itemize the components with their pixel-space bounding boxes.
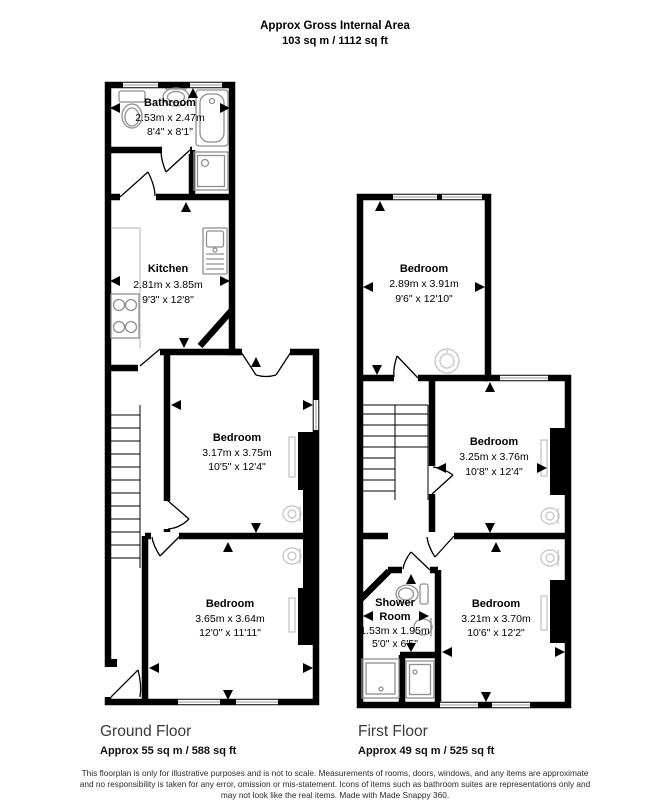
room-dims-imperial: 9'3" x 12'8" (142, 294, 194, 306)
room-name: Bathroom (144, 97, 196, 109)
measurement-arrow (375, 201, 385, 211)
room-dims-imperial: 10'5" x 12'4" (208, 461, 266, 473)
room-dims-imperial: 8'4" x 8'1" (147, 126, 193, 138)
window (500, 375, 548, 382)
floor-captions: Ground Floor Approx 55 sq m / 588 sq ft … (100, 723, 495, 757)
room-dims-imperial: 5'0" x 6'5" (372, 638, 418, 650)
first-floor-door-openings (388, 378, 454, 570)
measurement-arrow (555, 647, 565, 657)
window (178, 699, 220, 706)
room-dims-imperial: 12'0" x 11'11" (199, 627, 261, 639)
measurement-arrow (171, 400, 181, 410)
window (440, 702, 478, 709)
room-label-shower-room: Shower Room 1.53m x 1.95m 5'0" x 6'5" (360, 597, 430, 650)
first-floor-caption: First Floor (358, 723, 428, 740)
shower-tray-icon (406, 661, 434, 698)
room-dims-metric: 2.89m x 3.91m (389, 278, 459, 290)
measurement-arrow (406, 574, 416, 584)
window (313, 400, 320, 430)
ground-floor-area: Approx 55 sq m / 588 sq ft (100, 745, 237, 757)
room-label-bedroom-middle: Bedroom 3.17m x 3.75m 10'5" x 12'4" (202, 432, 272, 473)
window (393, 194, 437, 201)
room-label-bedroom-front: Bedroom 3.21m x 3.70m 10'6" x 12'2" (461, 598, 531, 639)
room-dims-imperial: 10'8" x 12'4" (465, 466, 523, 478)
radiator (289, 598, 295, 632)
ground-floor-windows (123, 82, 320, 706)
disclaimer-line-3: may not look like the real items. Made w… (221, 790, 449, 800)
window (492, 702, 530, 709)
measurement-arrow (220, 276, 230, 286)
measurement-arrow (149, 663, 159, 673)
measurement-arrow (303, 663, 313, 673)
window (123, 82, 158, 89)
measurement-arrow (223, 542, 233, 552)
wall-basin-icon (541, 550, 559, 566)
disclaimer: This floorplan is only for illustrative … (80, 768, 591, 800)
wall-basin-icon (541, 508, 559, 524)
room-label-kitchen: Kitchen 2.81m x 3.85m 9'3" x 12'8" (133, 263, 203, 306)
room-name-line1: Shower (375, 597, 415, 609)
room-label-bedroom-top: Bedroom 2.89m x 3.91m 9'6" x 12'10" (389, 263, 459, 305)
measurement-arrow (475, 282, 485, 292)
kitchen-sink-icon (203, 228, 227, 274)
room-dims-metric: 2.53m x 2.47m (135, 112, 205, 124)
ground-floor-caption: Ground Floor (100, 723, 191, 740)
room-name: Bedroom (206, 598, 255, 610)
measurement-arrow (485, 523, 495, 533)
measurement-arrow (223, 690, 233, 700)
floorplan-page: Approx Gross Internal Area 103 sq m / 11… (0, 0, 670, 812)
disclaimer-line-2: and no responsibility is taken for any e… (80, 779, 591, 789)
gross-area-title: Approx Gross Internal Area (260, 20, 410, 32)
gross-area-value: 103 sq m / 1112 sq ft (282, 35, 388, 47)
staircase-icon (110, 405, 140, 568)
room-name: Bedroom (213, 432, 262, 444)
measurement-arrow (372, 365, 382, 375)
door-swing (140, 349, 160, 366)
shower-tray-icon (362, 659, 399, 698)
measurement-arrow (363, 611, 373, 621)
radiator (289, 437, 295, 477)
measurement-arrow (181, 202, 191, 212)
measurement-arrow (363, 282, 373, 292)
measurement-arrow (436, 463, 446, 473)
measurement-arrow (485, 382, 495, 392)
window (236, 699, 278, 706)
header: Approx Gross Internal Area 103 sq m / 11… (260, 20, 410, 47)
room-dims-metric: 3.17m x 3.75m (202, 447, 272, 459)
room-name: Kitchen (148, 263, 189, 275)
radiator (541, 596, 547, 630)
wall (200, 310, 232, 346)
measurement-arrow (110, 103, 120, 113)
room-name: Bedroom (470, 436, 519, 448)
measurement-arrow (110, 276, 120, 286)
measurement-arrow (303, 400, 313, 410)
room-label-bedroom-front: Bedroom 3.65m x 3.64m 12'0" x 11'11" (195, 598, 265, 639)
measurement-arrow (537, 463, 547, 473)
measurement-arrow (491, 542, 501, 552)
measurement-arrow (442, 647, 452, 657)
room-dims-imperial: 10'6" x 12'2" (467, 627, 525, 639)
disclaimer-line-1: This floorplan is only for illustrative … (82, 768, 589, 778)
room-label-bathroom: Bathroom 2.53m x 2.47m 8'4" x 8'1" (135, 97, 205, 138)
room-dims-imperial: 9'6" x 12'10" (395, 293, 453, 305)
room-dims-metric: 2.81m x 3.85m (133, 279, 203, 291)
first-floor-area: Approx 49 sq m / 525 sq ft (358, 745, 495, 757)
room-dims-metric: 1.53m x 1.95m (360, 625, 430, 637)
hob-icon (111, 294, 139, 338)
shower-cubicle-icon (194, 152, 228, 190)
window (190, 82, 222, 89)
measurement-arrow (251, 357, 261, 367)
measurement-arrow (179, 338, 189, 348)
room-name-line2: Room (379, 611, 410, 623)
ground-floor-plan: Bathroom 2.53m x 2.47m 8'4" x 8'1" Kitch… (105, 82, 320, 706)
measurement-arrow (251, 523, 261, 533)
room-name: Bedroom (472, 598, 521, 610)
pedestal-sink-icon (435, 349, 459, 373)
room-label-bedroom-middle: Bedroom 3.25m x 3.76m 10'8" x 12'4" (459, 436, 529, 478)
room-name: Bedroom (400, 263, 449, 275)
wall (360, 571, 389, 600)
wall-basin-icon (283, 548, 301, 564)
first-floor-plan: Bedroom 2.89m x 3.91m 9'6" x 12'10" Bedr… (360, 194, 568, 709)
room-dims-metric: 3.65m x 3.64m (195, 613, 265, 625)
radiator (541, 440, 547, 476)
staircase-icon (362, 405, 428, 500)
measurement-arrow (481, 692, 491, 702)
wall-basin-icon (283, 506, 301, 522)
window (442, 194, 482, 201)
room-dims-metric: 3.25m x 3.76m (459, 451, 529, 463)
floorplan-canvas: Approx Gross Internal Area 103 sq m / 11… (0, 0, 670, 812)
room-dims-metric: 3.21m x 3.70m (461, 613, 531, 625)
